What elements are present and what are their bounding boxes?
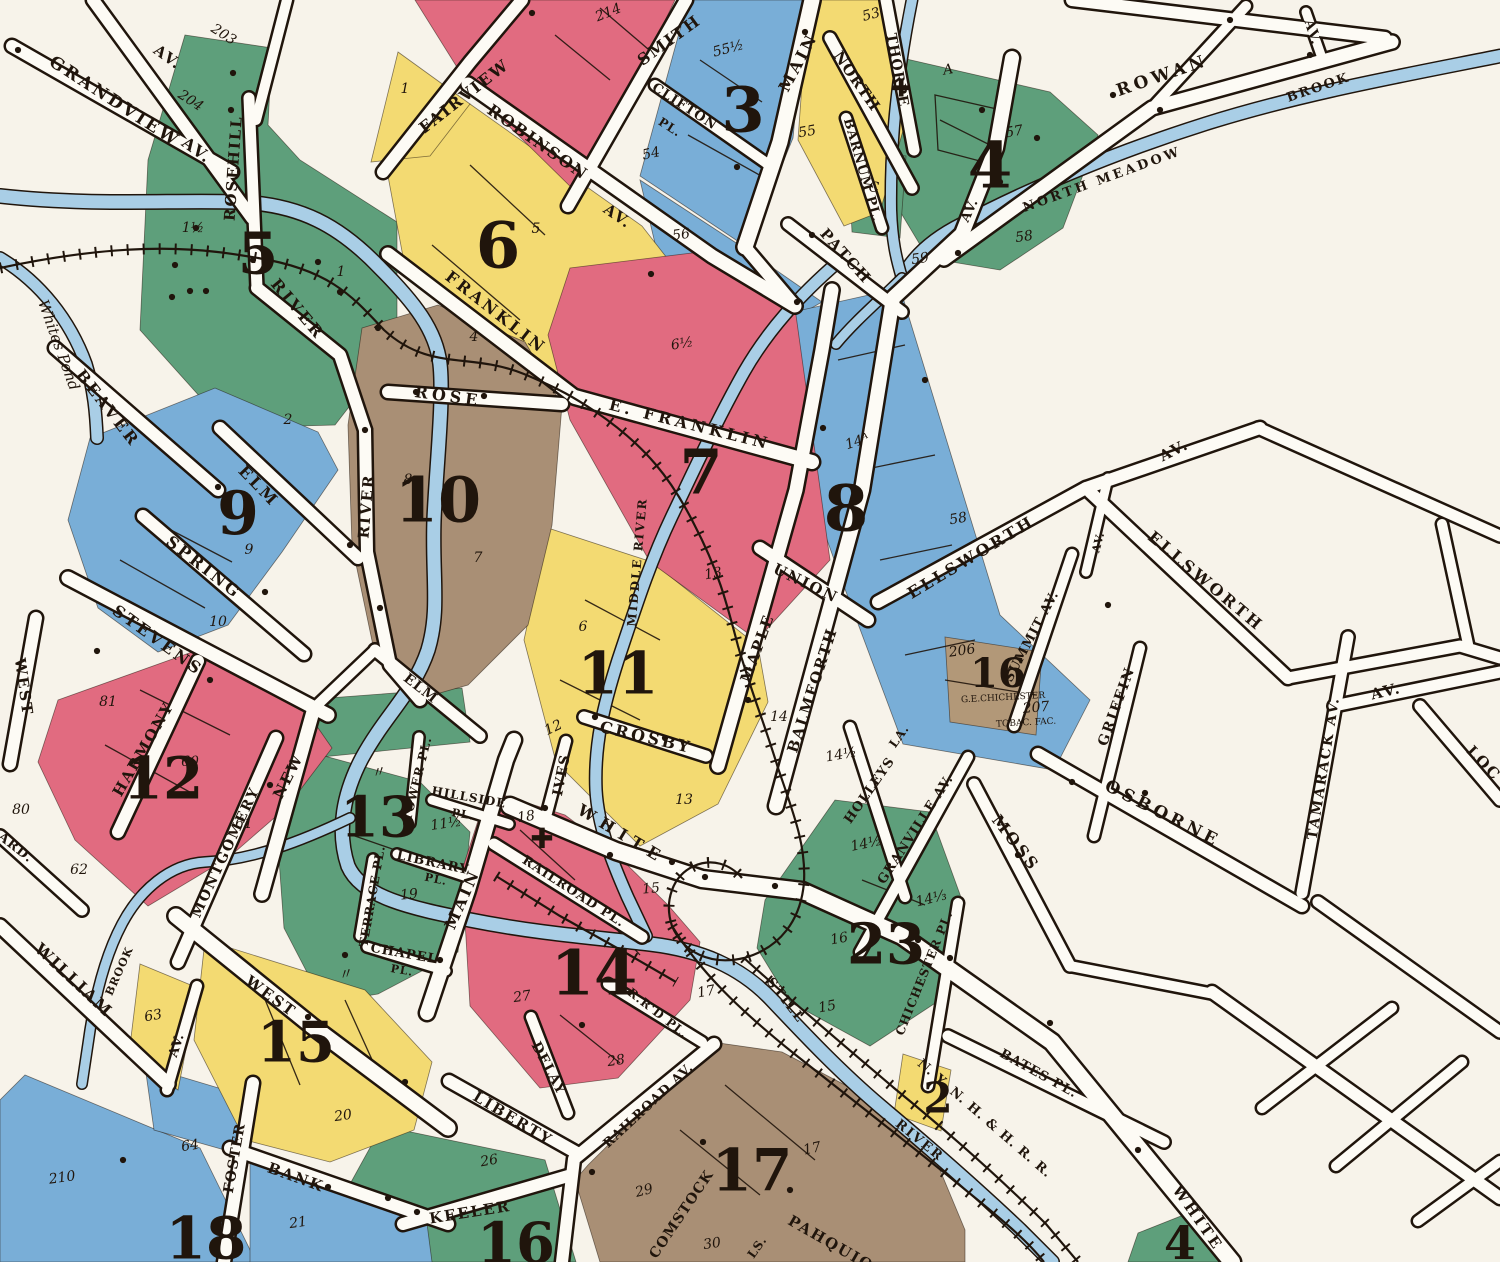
- district-number-label-7: 7: [679, 436, 722, 509]
- lot-number-label-6: 6: [579, 619, 588, 635]
- district-number-label-5: 5: [238, 219, 278, 287]
- lot-number-label-81: 81: [99, 694, 117, 710]
- lot-number-label-58: 58: [1014, 228, 1034, 246]
- district-number-label-8: 8: [824, 471, 869, 546]
- corner-dot: [745, 697, 751, 703]
- corner-dot: [820, 425, 826, 431]
- corner-dot: [592, 714, 598, 720]
- church-cross-icon: ✚: [530, 822, 553, 855]
- corner-dot: [794, 299, 800, 305]
- corner-dot: [589, 1169, 595, 1175]
- corner-dot: [187, 288, 193, 294]
- corner-dot: [1047, 1020, 1053, 1026]
- district-number-label-9: 9: [217, 479, 259, 549]
- lot-number-label-16: 16: [829, 929, 849, 948]
- corner-dot: [169, 294, 175, 300]
- lot-number-label-57: 57: [1004, 122, 1024, 141]
- lot-number-label-59: 59: [910, 250, 930, 268]
- lot-number-label-8: 8: [404, 472, 413, 488]
- lot-number-label-58: 58: [948, 509, 968, 528]
- lot-number-label-7: 7: [474, 550, 483, 566]
- lot-number-label-20: 20: [332, 1107, 353, 1125]
- lot-number-label-64: 64: [180, 1137, 200, 1155]
- corner-dot: [437, 957, 443, 963]
- lot-number-label-55: 55: [797, 122, 817, 141]
- map-canvas: GRANDVIEWAV.AV.ROSEHILLRIVERBEAVERELMSPR…: [0, 0, 1500, 1262]
- sanborn-index-map: GRANDVIEWAV.AV.ROSEHILLRIVERBEAVERELMSPR…: [0, 0, 1500, 1262]
- corner-dot: [648, 271, 654, 277]
- church-cross-icon: ✚: [891, 74, 911, 102]
- corner-dot: [362, 427, 368, 433]
- corner-dot: [385, 1195, 391, 1201]
- corner-dot: [120, 1157, 126, 1163]
- lot-number-label-15: 15: [817, 997, 837, 1016]
- lot-number-label-13: 13: [675, 792, 693, 808]
- corner-dot: [947, 955, 953, 961]
- corner-dot: [700, 1139, 706, 1145]
- corner-dot: [1105, 602, 1111, 608]
- corner-dot: [1110, 92, 1116, 98]
- corner-dot: [402, 1079, 408, 1085]
- lot-number-label-60: 60: [181, 754, 199, 770]
- corner-dot: [347, 542, 353, 548]
- lot-number-label-4: 4: [469, 329, 479, 345]
- lot-number-label-26: 26: [478, 1151, 499, 1170]
- corner-dot: [955, 250, 961, 256]
- corner-dot: [1307, 52, 1313, 58]
- corner-dot: [529, 10, 535, 16]
- lot-number-label-61: 61: [235, 816, 253, 832]
- corner-dot: [607, 852, 613, 858]
- lot-number-label-63: 63: [143, 1006, 163, 1025]
- corner-dot: [1069, 779, 1075, 785]
- lot-number-label-1: 1: [337, 264, 346, 280]
- corner-dot: [579, 1022, 585, 1028]
- district-number-label-3: 3: [721, 74, 764, 147]
- district-number-label-16: 16: [970, 650, 1026, 697]
- lot-number-label-15: 15: [642, 880, 661, 897]
- lot-number-label-14: 14: [770, 709, 788, 725]
- district-number-label-13: 13: [340, 785, 418, 851]
- district-number-label-11: 11: [578, 639, 659, 707]
- lot-number-label-28: 28: [605, 1052, 626, 1070]
- corner-dot: [414, 1209, 420, 1215]
- corner-dot: [734, 164, 740, 170]
- corner-dot: [1135, 1147, 1141, 1153]
- lot-number-label-5: 5: [532, 221, 541, 237]
- district-number-label-17: 17: [712, 1136, 793, 1204]
- lot-number-label-62: 62: [70, 862, 88, 878]
- corner-dot: [669, 859, 675, 865]
- district-number-label-15: 15: [257, 1010, 335, 1076]
- lot-number-label-17: 17: [696, 982, 716, 1001]
- lot-number-label-80: 80: [12, 802, 30, 818]
- lot-number-label-30: 30: [702, 1235, 722, 1253]
- district-number-label-4: 4: [1164, 1216, 1196, 1262]
- corner-dot: [342, 952, 348, 958]
- corner-dot: [1227, 17, 1233, 23]
- corner-dot: [228, 107, 234, 113]
- district-number-label-16: 16: [477, 1211, 555, 1262]
- corner-dot: [207, 677, 213, 683]
- lot-number-label-9: 9: [245, 542, 254, 558]
- lot-number-label-27: 27: [511, 988, 532, 1006]
- lot-number-label-1: 1½: [182, 220, 204, 236]
- lot-number-label-c: C: [869, 180, 880, 196]
- lot-number-label-1: 1: [401, 81, 410, 97]
- corner-dot: [262, 589, 268, 595]
- corner-dot: [337, 289, 343, 295]
- corner-dot: [542, 805, 548, 811]
- corner-dot: [315, 259, 321, 265]
- corner-dot: [1157, 107, 1163, 113]
- corner-dot: [325, 1184, 331, 1190]
- corner-dot: [979, 107, 985, 113]
- corner-dot: [203, 288, 209, 294]
- lot-number-label-56: 56: [671, 226, 691, 244]
- district-number-label-6: 6: [476, 208, 521, 283]
- corner-dot: [377, 605, 383, 611]
- corner-dot: [809, 232, 815, 238]
- district-number-label-14: 14: [551, 937, 637, 1010]
- corner-dot: [230, 70, 236, 76]
- corner-dot: [702, 874, 708, 880]
- lot-number-label-10: 10: [209, 614, 227, 630]
- lot-number-label-19: 19: [400, 886, 419, 903]
- corner-dot: [172, 262, 178, 268]
- corner-dot: [15, 47, 21, 53]
- lot-number-label-21: 21: [287, 1214, 308, 1232]
- corner-dot: [922, 377, 928, 383]
- corner-dot: [1034, 135, 1040, 141]
- district-number-label-18: 18: [166, 1204, 247, 1262]
- lot-number-label-13: 13: [703, 564, 723, 583]
- lot-number-label-2: 2: [283, 412, 293, 428]
- corner-dot: [375, 325, 381, 331]
- corner-dot: [772, 883, 778, 889]
- district-number-label-23: 23: [847, 912, 925, 978]
- corner-dot: [94, 648, 100, 654]
